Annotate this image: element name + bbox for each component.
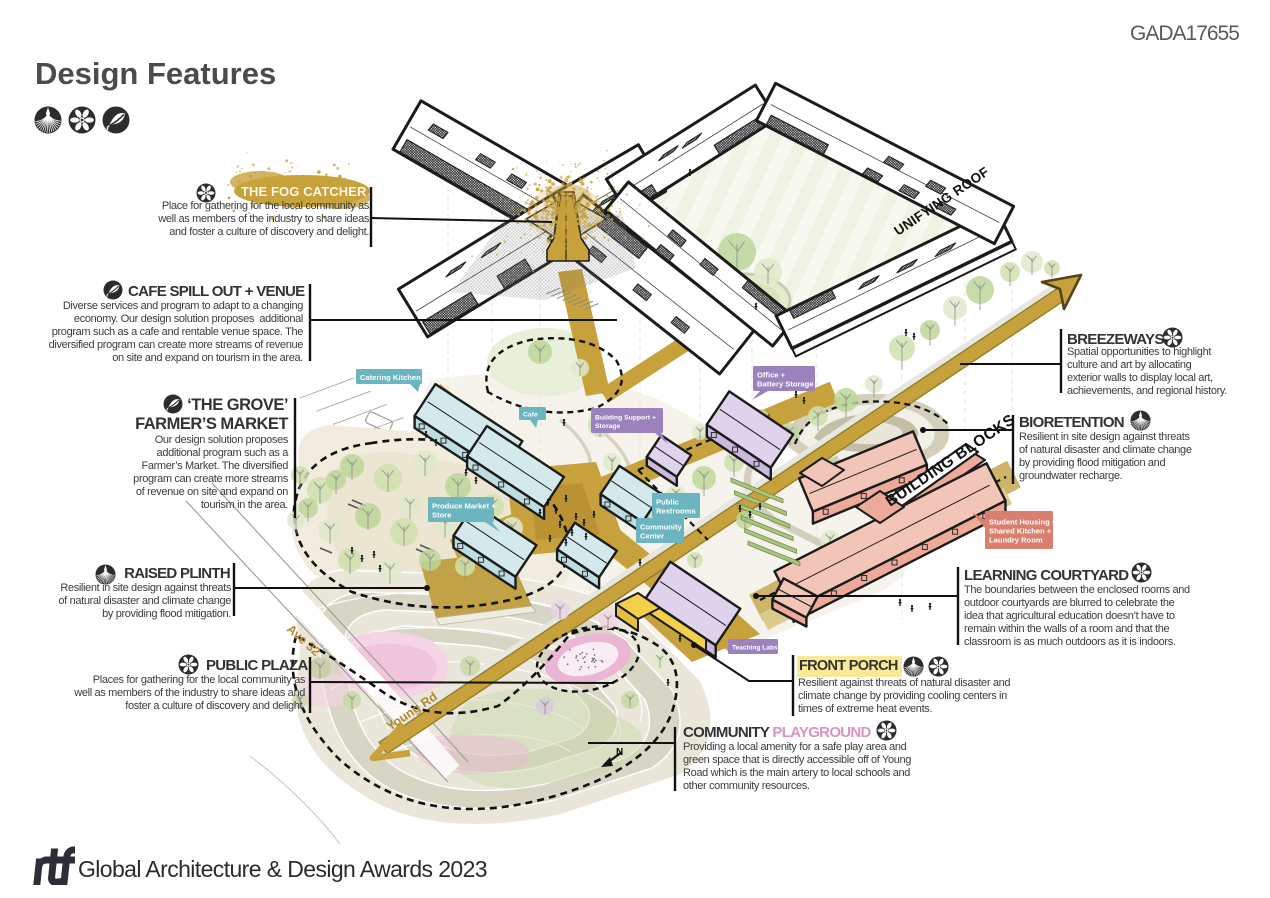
svg-text:Public: Public — [656, 497, 679, 506]
svg-text:Store: Store — [432, 511, 451, 520]
svg-text:Battery Storage: Battery Storage — [757, 380, 814, 389]
svg-text:Teaching Labs: Teaching Labs — [732, 645, 778, 652]
svg-text:Building Support +: Building Support + — [595, 414, 656, 421]
svg-text:N: N — [616, 747, 623, 758]
svg-text:Office +: Office + — [757, 370, 786, 379]
svg-text:Center: Center — [640, 532, 664, 541]
svg-text:Produce Market +: Produce Market + — [432, 501, 496, 510]
svg-text:Catering Kitchen: Catering Kitchen — [360, 373, 421, 382]
svg-text:Restrooms: Restrooms — [656, 507, 696, 516]
svg-text:Cafe: Cafe — [523, 412, 538, 419]
svg-text:Laundry Room: Laundry Room — [989, 536, 1043, 545]
svg-text:Shared Kitchen +: Shared Kitchen + — [989, 527, 1052, 536]
svg-text:Storage: Storage — [595, 423, 621, 430]
svg-text:Community: Community — [640, 522, 683, 531]
svg-text:Student Housing +: Student Housing + — [989, 517, 1057, 526]
